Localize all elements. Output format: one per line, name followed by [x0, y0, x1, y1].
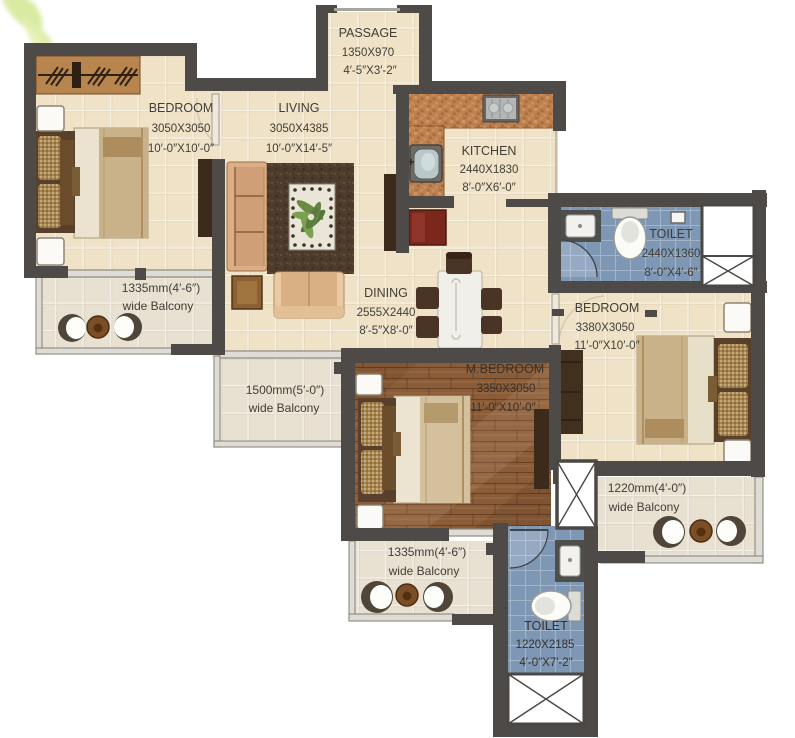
- svg-text:3350X3050: 3350X3050: [477, 383, 536, 395]
- svg-text:11′-0″X10′-0″: 11′-0″X10′-0″: [574, 340, 639, 352]
- svg-text:M.BEDROOM: M.BEDROOM: [466, 362, 544, 376]
- svg-text:8′-0″X4′-6″: 8′-0″X4′-6″: [644, 267, 697, 279]
- svg-text:BEDROOM: BEDROOM: [149, 101, 214, 115]
- svg-text:11′-0″X10′-0″: 11′-0″X10′-0″: [470, 402, 535, 414]
- svg-text:LIVING: LIVING: [279, 101, 320, 115]
- svg-text:1220mm(4′-0″): 1220mm(4′-0″): [608, 481, 687, 495]
- svg-text:1335mm(4′-6″): 1335mm(4′-6″): [388, 545, 467, 559]
- svg-text:1350X970: 1350X970: [342, 47, 394, 59]
- svg-text:2440X1360: 2440X1360: [642, 248, 701, 260]
- svg-text:2555X2440: 2555X2440: [357, 307, 416, 319]
- svg-text:1500mm(5′-0″): 1500mm(5′-0″): [246, 383, 325, 397]
- svg-text:wide Balcony: wide Balcony: [248, 401, 320, 415]
- svg-text:wide Balcony: wide Balcony: [122, 299, 194, 313]
- svg-text:3050X3050: 3050X3050: [152, 123, 211, 135]
- svg-text:wide Balcony: wide Balcony: [608, 500, 680, 514]
- svg-text:PASSAGE: PASSAGE: [339, 26, 398, 40]
- svg-text:1335mm(4′-6″): 1335mm(4′-6″): [122, 281, 201, 295]
- svg-text:4′-0″X7′-2″: 4′-0″X7′-2″: [519, 657, 572, 669]
- svg-text:4′-5″X3′-2″: 4′-5″X3′-2″: [343, 65, 396, 77]
- svg-text:TOILET: TOILET: [649, 227, 693, 241]
- svg-text:10′-0″X10′-0″: 10′-0″X10′-0″: [148, 143, 214, 155]
- svg-text:3050X4385: 3050X4385: [270, 123, 329, 135]
- svg-text:3380X3050: 3380X3050: [576, 322, 635, 334]
- svg-text:1220X2185: 1220X2185: [516, 639, 575, 651]
- svg-text:DINING: DINING: [364, 286, 408, 300]
- svg-text:8′-5″X8′-0″: 8′-5″X8′-0″: [359, 325, 412, 337]
- svg-text:wide Balcony: wide Balcony: [388, 564, 460, 578]
- svg-text:KITCHEN: KITCHEN: [462, 144, 517, 158]
- svg-text:10′-0″X14′-5″: 10′-0″X14′-5″: [266, 143, 332, 155]
- svg-text:BEDROOM: BEDROOM: [575, 301, 640, 315]
- svg-text:2440X1830: 2440X1830: [460, 164, 519, 176]
- svg-text:TOILET: TOILET: [524, 619, 568, 633]
- svg-text:8′-0″X6′-0″: 8′-0″X6′-0″: [462, 182, 515, 194]
